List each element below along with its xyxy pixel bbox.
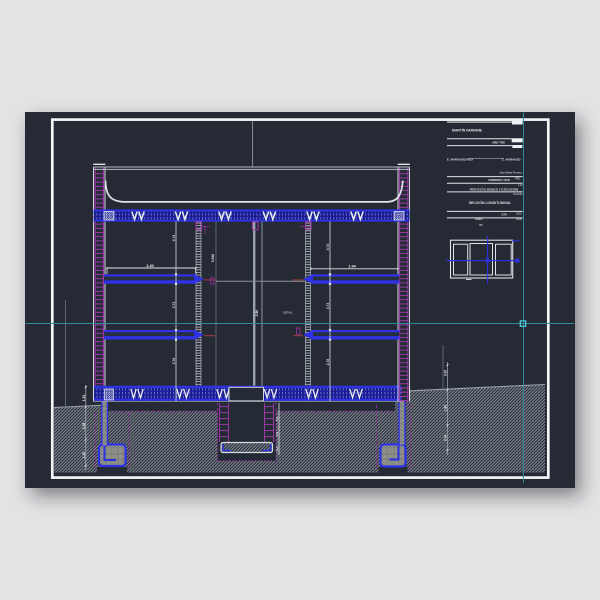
svg-text:1/75: 1/75	[501, 213, 507, 217]
svg-text:1.10: 1.10	[82, 452, 86, 459]
svg-text:0.3: 0.3	[275, 447, 279, 452]
svg-text:07: 07	[479, 223, 483, 227]
svg-text:0.74: 0.74	[326, 244, 330, 251]
svg-text:0.30: 0.30	[444, 370, 448, 376]
svg-text:SECCIÓN LONGITUDINAL: SECCIÓN LONGITUDINAL	[469, 200, 512, 205]
svg-text:3.48: 3.48	[82, 423, 86, 430]
svg-text:PLANO: PLANO	[513, 192, 522, 196]
svg-text:0.4: 0.4	[275, 432, 279, 437]
svg-text:2.78: 2.78	[326, 359, 330, 366]
svg-text:04/07: 04/07	[475, 217, 483, 221]
svg-text:C. NARANJO: C. NARANJO	[502, 158, 521, 162]
svg-text:DETALL: DETALL	[283, 311, 293, 315]
svg-text:ESC: ESC	[516, 211, 522, 215]
svg-text:2.90: 2.90	[255, 310, 259, 317]
svg-text:PROYECTO BÁSICO Y EJECUCIÓN: PROYECTO BÁSICO Y EJECUCIÓN	[470, 187, 519, 192]
svg-text:1.96: 1.96	[444, 405, 448, 411]
svg-text:0.74: 0.74	[172, 235, 176, 242]
svg-text:1.94: 1.94	[348, 265, 356, 269]
svg-text:3.73: 3.73	[172, 302, 176, 309]
svg-text:1.34: 1.34	[82, 395, 86, 402]
svg-text:AÑO TRE: AÑO TRE	[492, 140, 505, 145]
svg-text:5.948: 5.948	[211, 254, 215, 262]
svg-text:3.73: 3.73	[326, 303, 330, 310]
svg-text:2.78: 2.78	[172, 358, 176, 365]
svg-text:L10: L10	[518, 183, 523, 187]
svg-text:0000: 0000	[516, 217, 522, 221]
svg-text:Jose Maria Romero: Jose Maria Romero	[499, 171, 522, 175]
svg-text:0.74: 0.74	[444, 435, 448, 441]
svg-text:TRE: TRE	[515, 177, 520, 181]
svg-text:0.2: 0.2	[275, 417, 279, 422]
svg-text:MARTÍN FARFANE: MARTÍN FARFANE	[452, 128, 483, 133]
svg-text:FEBRERO 1978: FEBRERO 1978	[488, 178, 510, 182]
svg-text:1.30: 1.30	[146, 264, 153, 268]
